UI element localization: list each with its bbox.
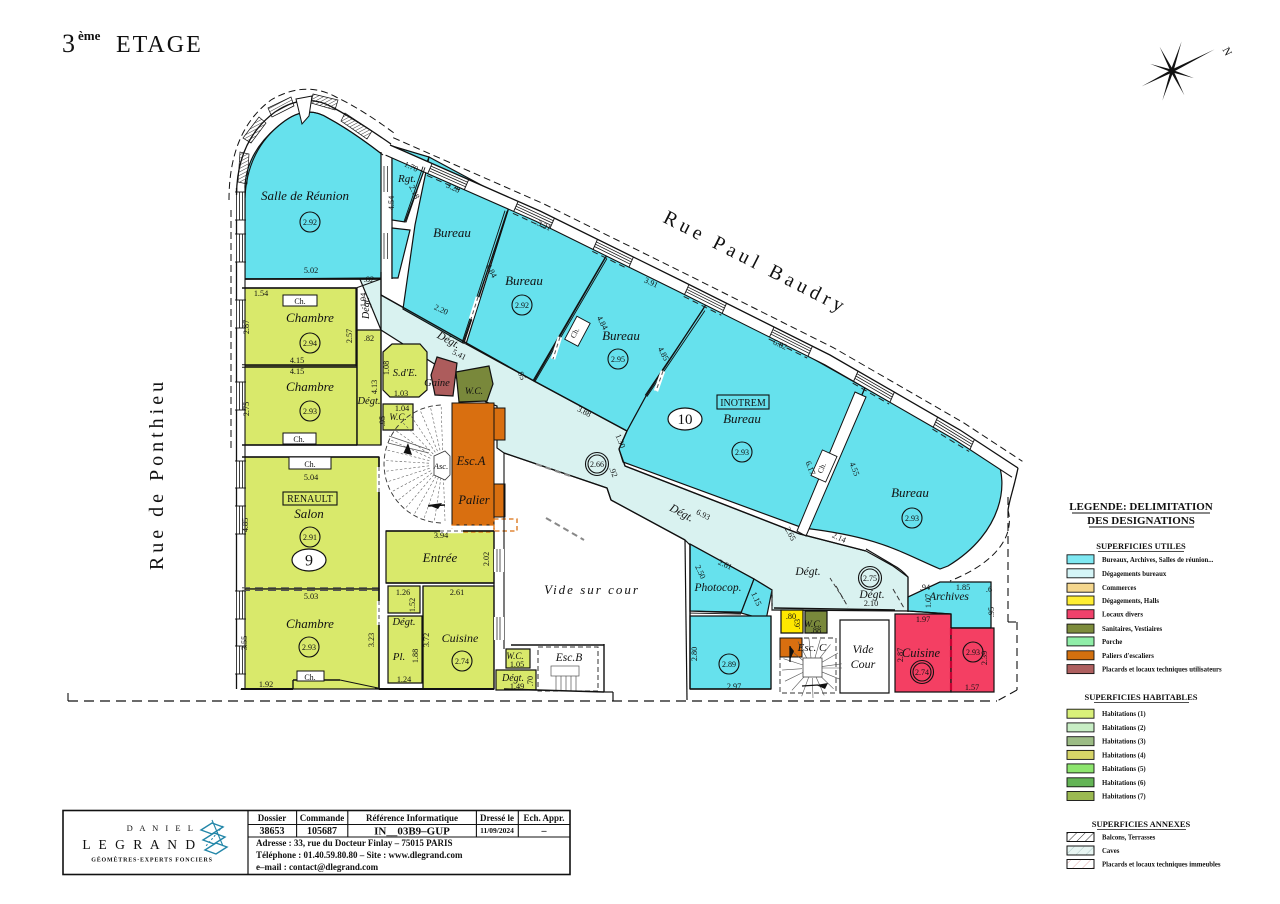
svg-text:Bureau: Bureau xyxy=(891,485,929,500)
svg-text:1.92: 1.92 xyxy=(259,680,273,689)
svg-text:.82: .82 xyxy=(364,334,374,343)
svg-text:Rue de Ponthieu: Rue de Ponthieu xyxy=(146,378,168,570)
svg-text:1.26: 1.26 xyxy=(396,588,410,597)
svg-text:1.97: 1.97 xyxy=(916,615,930,624)
svg-text:5.02: 5.02 xyxy=(304,266,318,275)
svg-text:D A N I E L: D A N I E L xyxy=(127,823,196,833)
svg-text:105687: 105687 xyxy=(307,826,337,837)
svg-text:Bureau: Bureau xyxy=(602,328,640,343)
svg-text:Esc.B: Esc.B xyxy=(555,652,583,664)
svg-text:Porche: Porche xyxy=(1102,639,1122,646)
svg-text:1.07: 1.07 xyxy=(924,594,933,608)
svg-text:Salon: Salon xyxy=(294,506,324,521)
svg-text:Bureau: Bureau xyxy=(505,273,543,288)
svg-text:S.d'E.: S.d'E. xyxy=(393,368,417,379)
svg-text:Placards et locaux techniqu: Placards et locaux techniques utilisateu… xyxy=(1102,667,1222,674)
svg-text:2.89: 2.89 xyxy=(722,660,736,669)
svg-text:Bureaux, Archives, Salles d: Bureaux, Archives, Salles de réunion... xyxy=(1102,557,1214,564)
svg-text:Rgt.: Rgt. xyxy=(397,173,416,185)
svg-text:3.72: 3.72 xyxy=(422,633,431,647)
svg-text:RENAULT: RENAULT xyxy=(287,494,333,505)
svg-text:.88: .88 xyxy=(811,626,821,635)
svg-text:.70: .70 xyxy=(526,676,535,686)
svg-text:2.10: 2.10 xyxy=(864,599,878,608)
svg-text:Caves: Caves xyxy=(1102,848,1120,855)
svg-text:2.39: 2.39 xyxy=(980,651,989,665)
svg-text:4.54: 4.54 xyxy=(387,196,396,210)
svg-text:Ech. Appr.: Ech. Appr. xyxy=(524,813,565,823)
svg-text:Dégagements bureaux: Dégagements bureaux xyxy=(1102,571,1167,578)
svg-text:Asc.: Asc. xyxy=(433,461,448,471)
svg-text:2.94: 2.94 xyxy=(303,339,317,348)
svg-text:1.94: 1.94 xyxy=(359,293,368,307)
svg-text:SUPERFICIES ANNEXES: SUPERFICIES ANNEXES xyxy=(1092,819,1191,829)
svg-text:2.66: 2.66 xyxy=(590,460,604,469)
svg-text:1.03: 1.03 xyxy=(394,389,408,398)
svg-text:9: 9 xyxy=(305,552,313,569)
svg-text:Vide sur cour: Vide sur cour xyxy=(544,582,640,597)
svg-text:2.75: 2.75 xyxy=(242,402,251,416)
svg-text:ème: ème xyxy=(78,28,101,43)
svg-text:Commerces: Commerces xyxy=(1102,585,1137,592)
svg-text:Habitations (5): Habitations (5) xyxy=(1102,766,1146,773)
svg-text:IN__03B9–GUP: IN__03B9–GUP xyxy=(374,826,450,838)
svg-text:2.93: 2.93 xyxy=(905,514,919,523)
svg-text:Vide: Vide xyxy=(852,642,874,656)
svg-text:Cour: Cour xyxy=(851,657,876,671)
svg-text:L E G R A N D: L E G R A N D xyxy=(82,837,197,852)
svg-text:Référence Informatique: Référence Informatique xyxy=(366,813,458,823)
svg-text:2.87: 2.87 xyxy=(242,320,251,334)
svg-text:e–mail : contact@dlegrand.co: e–mail : contact@dlegrand.com xyxy=(256,862,379,872)
svg-text:2.75: 2.75 xyxy=(863,574,877,583)
svg-text:2.93: 2.93 xyxy=(966,648,980,657)
svg-text:Habitations (3): Habitations (3) xyxy=(1102,739,1146,746)
svg-text:Balcons, Terrasses: Balcons, Terrasses xyxy=(1102,835,1156,842)
svg-text:INOTREM: INOTREM xyxy=(720,398,766,409)
svg-text:1.88: 1.88 xyxy=(411,649,420,663)
svg-text:Pl.: Pl. xyxy=(392,651,406,663)
svg-text:2.92: 2.92 xyxy=(303,218,317,227)
svg-text:Habitations (4): Habitations (4) xyxy=(1102,752,1146,759)
svg-text:.95: .95 xyxy=(378,416,387,426)
svg-text:.6: .6 xyxy=(986,585,992,594)
svg-text:W.C.: W.C. xyxy=(389,412,406,422)
svg-text:Ch.: Ch. xyxy=(294,297,305,306)
svg-text:2.95: 2.95 xyxy=(611,355,625,364)
svg-text:4.15: 4.15 xyxy=(290,367,304,376)
svg-text:5.04: 5.04 xyxy=(304,473,318,482)
svg-text:Esc. C: Esc. C xyxy=(797,642,827,654)
svg-text:Habitations (7): Habitations (7) xyxy=(1102,794,1146,801)
svg-text:.63: .63 xyxy=(793,619,802,629)
svg-text:1.57: 1.57 xyxy=(965,683,979,692)
svg-text:3.55: 3.55 xyxy=(240,636,249,650)
svg-text:Entrée: Entrée xyxy=(422,550,458,565)
svg-text:Chambre: Chambre xyxy=(286,310,334,325)
svg-text:2.02: 2.02 xyxy=(482,552,491,566)
svg-text:Archives: Archives xyxy=(928,591,969,603)
svg-text:4.85: 4.85 xyxy=(241,518,250,532)
svg-text:1.85: 1.85 xyxy=(956,583,970,592)
svg-text:2.61: 2.61 xyxy=(450,588,464,597)
svg-text:ETAGE: ETAGE xyxy=(116,32,203,58)
svg-text:2.97: 2.97 xyxy=(727,682,741,691)
svg-text:2.91: 2.91 xyxy=(303,533,317,542)
svg-text:Adresse : 33, rue du Doct: Adresse : 33, rue du Docteur Finlay – 75… xyxy=(256,838,453,848)
svg-text:1.04: 1.04 xyxy=(395,404,409,413)
svg-text:Chambre: Chambre xyxy=(286,616,334,631)
svg-text:Ch.: Ch. xyxy=(293,435,304,444)
svg-text:.94: .94 xyxy=(920,583,930,592)
svg-text:4.13: 4.13 xyxy=(370,380,379,394)
svg-text:2.92: 2.92 xyxy=(515,301,529,310)
svg-text:2.80: 2.80 xyxy=(690,647,699,661)
svg-text:Habitations (6): Habitations (6) xyxy=(1102,780,1146,787)
svg-text:4.15: 4.15 xyxy=(290,356,304,365)
svg-text:1.52: 1.52 xyxy=(408,598,417,612)
svg-text:5.03: 5.03 xyxy=(304,592,318,601)
svg-text:Dégt.: Dégt. xyxy=(391,617,415,628)
svg-text:Esc.A: Esc.A xyxy=(456,454,486,468)
svg-text:SUPERFICIES HABITABLES: SUPERFICIES HABITABLES xyxy=(1085,692,1198,702)
svg-text:Dégt.: Dégt. xyxy=(794,566,820,578)
svg-text:2.93: 2.93 xyxy=(302,643,316,652)
svg-text:.82: .82 xyxy=(364,275,374,284)
svg-text:10: 10 xyxy=(678,412,693,428)
svg-text:1.08: 1.08 xyxy=(382,361,391,375)
svg-text:Habitations (1): Habitations (1) xyxy=(1102,711,1146,718)
svg-text:11/09/2024: 11/09/2024 xyxy=(480,826,514,835)
svg-text:LEGENDE: DELIMITATION: LEGENDE: DELIMITATION xyxy=(1069,501,1213,513)
svg-text:38653: 38653 xyxy=(260,826,285,837)
svg-text:2.87: 2.87 xyxy=(896,648,905,662)
svg-text:1.24: 1.24 xyxy=(397,675,411,684)
svg-text:Gaine: Gaine xyxy=(424,378,450,389)
svg-text:.95: .95 xyxy=(987,607,996,617)
svg-text:W.C.: W.C. xyxy=(465,387,483,397)
svg-text:DES DESIGNATIONS: DES DESIGNATIONS xyxy=(1087,515,1195,527)
svg-text:Chambre: Chambre xyxy=(286,379,334,394)
svg-text:1.05: 1.05 xyxy=(510,660,524,669)
svg-text:2.93: 2.93 xyxy=(735,448,749,457)
svg-text:GÉOMÈTRES·EXPERTS FONCIERS: GÉOMÈTRES·EXPERTS FONCIERS xyxy=(91,856,212,864)
svg-text:2.57: 2.57 xyxy=(345,329,354,343)
svg-text:Palier: Palier xyxy=(457,493,489,507)
svg-text:Cuisine: Cuisine xyxy=(902,646,941,660)
svg-text:Ch.: Ch. xyxy=(304,673,315,682)
svg-text:Placards et locaux techniqu: Placards et locaux techniques immeubles xyxy=(1102,862,1221,869)
svg-text:Paliers d'escaliers: Paliers d'escaliers xyxy=(1102,653,1154,660)
svg-text:2.74: 2.74 xyxy=(915,668,929,677)
svg-text:1.54: 1.54 xyxy=(254,289,268,298)
svg-text:Dossier: Dossier xyxy=(258,813,287,823)
svg-text:–: – xyxy=(541,826,548,837)
svg-text:Photocop.: Photocop. xyxy=(694,582,742,594)
svg-text:2.93: 2.93 xyxy=(303,407,317,416)
svg-text:Bureau: Bureau xyxy=(433,225,471,240)
svg-text:SUPERFICIES UTILES: SUPERFICIES UTILES xyxy=(1096,541,1186,551)
svg-text:Habitations (2): Habitations (2) xyxy=(1102,725,1146,732)
svg-text:Commande: Commande xyxy=(300,813,345,823)
svg-text:Cuisine: Cuisine xyxy=(442,631,479,645)
svg-text:2.74: 2.74 xyxy=(455,657,469,666)
svg-text:Locaux divers: Locaux divers xyxy=(1102,612,1143,619)
svg-text:Dégagements, Halls: Dégagements, Halls xyxy=(1102,598,1159,605)
svg-text:Salle de Réunion: Salle de Réunion xyxy=(261,188,349,203)
svg-text:3.23: 3.23 xyxy=(367,633,376,647)
svg-text:Ch.: Ch. xyxy=(304,460,315,469)
svg-text:Téléphone : 01.40.59.80.80: Téléphone : 01.40.59.80.80 – Site : www.… xyxy=(256,850,463,860)
svg-text:Dégt.: Dégt. xyxy=(356,396,380,407)
svg-text:Dressé le: Dressé le xyxy=(480,813,514,823)
svg-text:Sanitaires, Vestiaires: Sanitaires, Vestiaires xyxy=(1102,626,1163,633)
svg-text:1.49: 1.49 xyxy=(510,682,524,691)
svg-text:Bureau: Bureau xyxy=(723,411,761,426)
svg-text:3.94: 3.94 xyxy=(434,531,448,540)
svg-text:3: 3 xyxy=(62,29,75,58)
